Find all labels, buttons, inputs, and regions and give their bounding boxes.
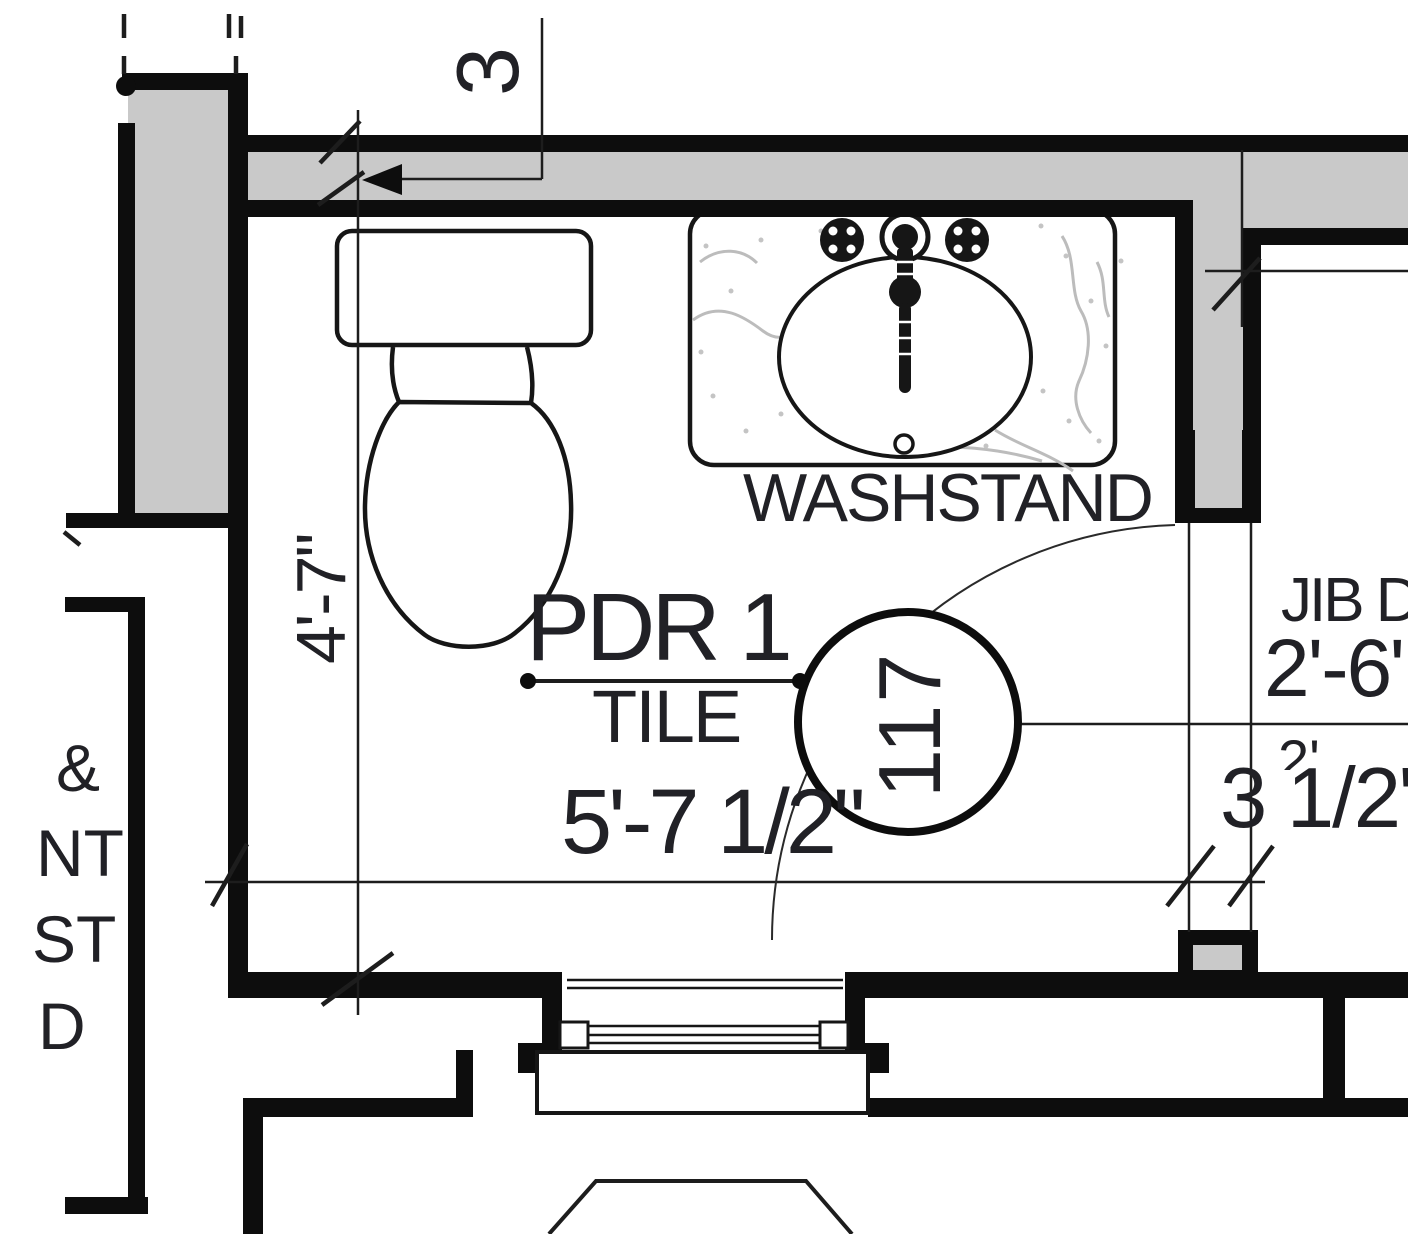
jib-door-size: 2'-6" <box>1264 628 1408 710</box>
left-edge-fragment-3: ST <box>32 906 116 972</box>
door-threshold <box>518 972 889 1113</box>
washstand-label: WASHSTAND <box>743 464 1152 532</box>
jamb-gray-notch <box>1193 945 1242 970</box>
dim-room-depth: 4'-7" <box>286 535 356 664</box>
room-number: 117 <box>866 652 954 798</box>
room-name-label: PDR 1 <box>526 580 789 676</box>
washstand-fixture <box>690 210 1124 471</box>
left-edge-fragment-4: D <box>38 993 86 1059</box>
floor-plan: WASHSTAND PDR 1 TILE 5'-7 1/2" JIB DOOR … <box>0 0 1408 1234</box>
room-finish-label: TILE <box>592 680 740 754</box>
dim-top-wall-offset: 3 <box>444 47 532 96</box>
left-edge-fragment-2: NT <box>36 820 124 886</box>
dim-room-width: 5'-7 1/2" <box>561 776 862 868</box>
sink-drain <box>895 435 913 453</box>
left-edge-fragment-1: & <box>56 735 100 801</box>
floor-break-symbol <box>549 1181 852 1234</box>
overlapping-text-fragment: 2' <box>1278 736 1348 770</box>
